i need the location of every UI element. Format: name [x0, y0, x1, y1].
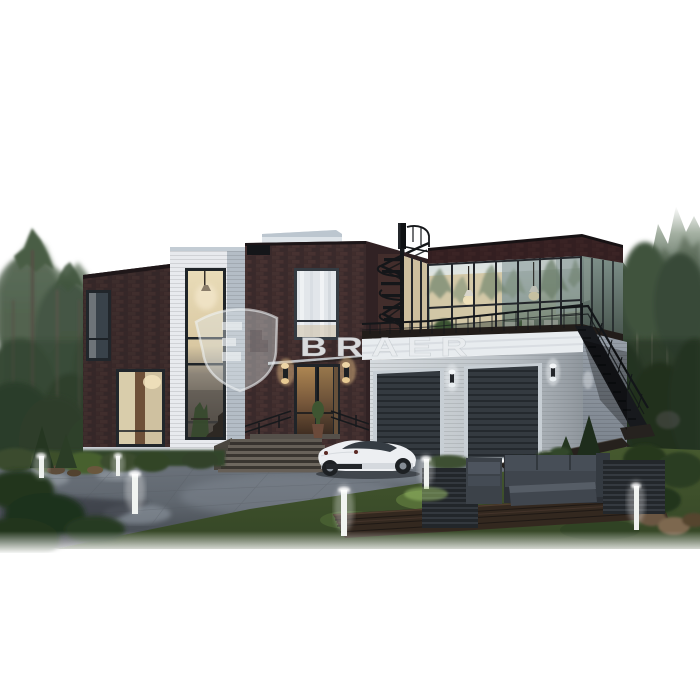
svg-text:BRAER: BRAER [300, 332, 476, 362]
